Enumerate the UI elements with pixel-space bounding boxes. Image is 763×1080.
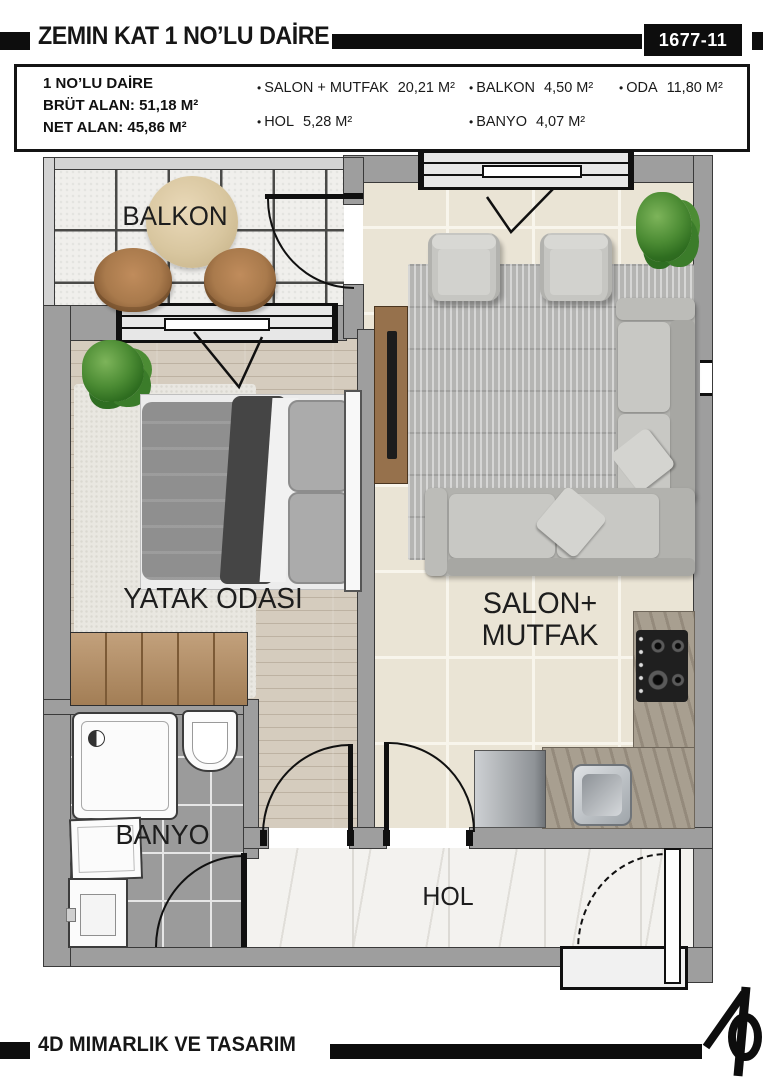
salon-plant bbox=[636, 192, 692, 262]
shower-tray bbox=[72, 712, 178, 820]
bed-blanket bbox=[142, 402, 234, 580]
sofa-armrest bbox=[425, 488, 447, 576]
sofa-main-section bbox=[425, 488, 695, 576]
dishwasher bbox=[474, 750, 546, 828]
sink-faucet bbox=[66, 908, 76, 922]
room-label-balkon: BALKON bbox=[98, 202, 252, 231]
bed-headboard bbox=[344, 390, 362, 592]
bedroom-wardrobe bbox=[70, 632, 248, 706]
balcony-chair-right bbox=[204, 248, 276, 312]
wall-segment bbox=[44, 306, 70, 966]
sofa-backrest bbox=[670, 320, 695, 502]
armchair-backrest bbox=[432, 235, 496, 249]
sofa-backrest bbox=[447, 558, 695, 576]
sofa-cushion bbox=[618, 322, 670, 412]
window-frame-line bbox=[424, 162, 628, 164]
window-sash bbox=[164, 318, 270, 331]
stove-cooktop bbox=[636, 630, 688, 702]
4d-logo bbox=[700, 985, 762, 1078]
floorplan-page: ZEMIN KAT 1 NO’LU DAİRE 1677-11 1 NO’LU … bbox=[0, 0, 763, 1080]
bathroom-sink bbox=[68, 878, 128, 948]
tv-console bbox=[374, 306, 408, 484]
room-label-yatak-odasi: YATAK ODASI bbox=[93, 584, 333, 615]
bed-pillow bbox=[288, 492, 350, 584]
sofa-armrest bbox=[616, 298, 695, 320]
kitchen-sink bbox=[572, 764, 632, 826]
window-frame-line bbox=[122, 315, 332, 317]
toilet bbox=[182, 710, 238, 772]
door-jamb bbox=[383, 830, 390, 846]
wall-segment bbox=[470, 828, 712, 848]
footer-left-block bbox=[0, 1042, 30, 1059]
wall-segment bbox=[350, 828, 386, 848]
entrance-door-leaf bbox=[664, 848, 681, 984]
armchair-backrest bbox=[544, 235, 608, 249]
wall-vent-notch bbox=[700, 360, 712, 396]
shower-drain bbox=[88, 730, 105, 747]
bedroom-plant bbox=[82, 340, 144, 402]
toilet-bowl bbox=[192, 722, 228, 764]
sink-basin bbox=[80, 894, 116, 936]
room-label-salon-line2: MUTFAK bbox=[442, 620, 638, 652]
armchair bbox=[428, 233, 500, 301]
armchair bbox=[540, 233, 612, 301]
wall-segment bbox=[44, 158, 348, 169]
stove-knobs bbox=[638, 636, 644, 696]
armchair-cushion bbox=[550, 249, 602, 295]
stove-burners bbox=[646, 632, 686, 700]
sofa-chaise-section bbox=[616, 298, 695, 502]
room-label-hol: HOL bbox=[400, 882, 496, 910]
wall-segment bbox=[44, 158, 54, 312]
tv-screen bbox=[387, 331, 397, 459]
bed-pillow bbox=[288, 400, 350, 492]
salon-window bbox=[418, 150, 634, 190]
room-label-salon: SALON+ MUTFAK bbox=[442, 588, 638, 653]
footer-divider-bar bbox=[330, 1044, 702, 1059]
room-label-salon-line1: SALON+ bbox=[442, 588, 638, 620]
room-label-banyo: BANYO bbox=[98, 820, 228, 850]
floor-plan: BALKON YATAK ODASI SALON+ MUTFAK BANYO H… bbox=[0, 0, 763, 1080]
company-name: 4D MIMARLIK VE TASARIM bbox=[38, 1033, 296, 1057]
armchair-cushion bbox=[438, 249, 490, 295]
door-jamb bbox=[466, 830, 473, 846]
window-sash bbox=[482, 165, 582, 178]
balcony-chair-left bbox=[94, 248, 172, 312]
kitchen-sink-basin bbox=[582, 774, 622, 816]
